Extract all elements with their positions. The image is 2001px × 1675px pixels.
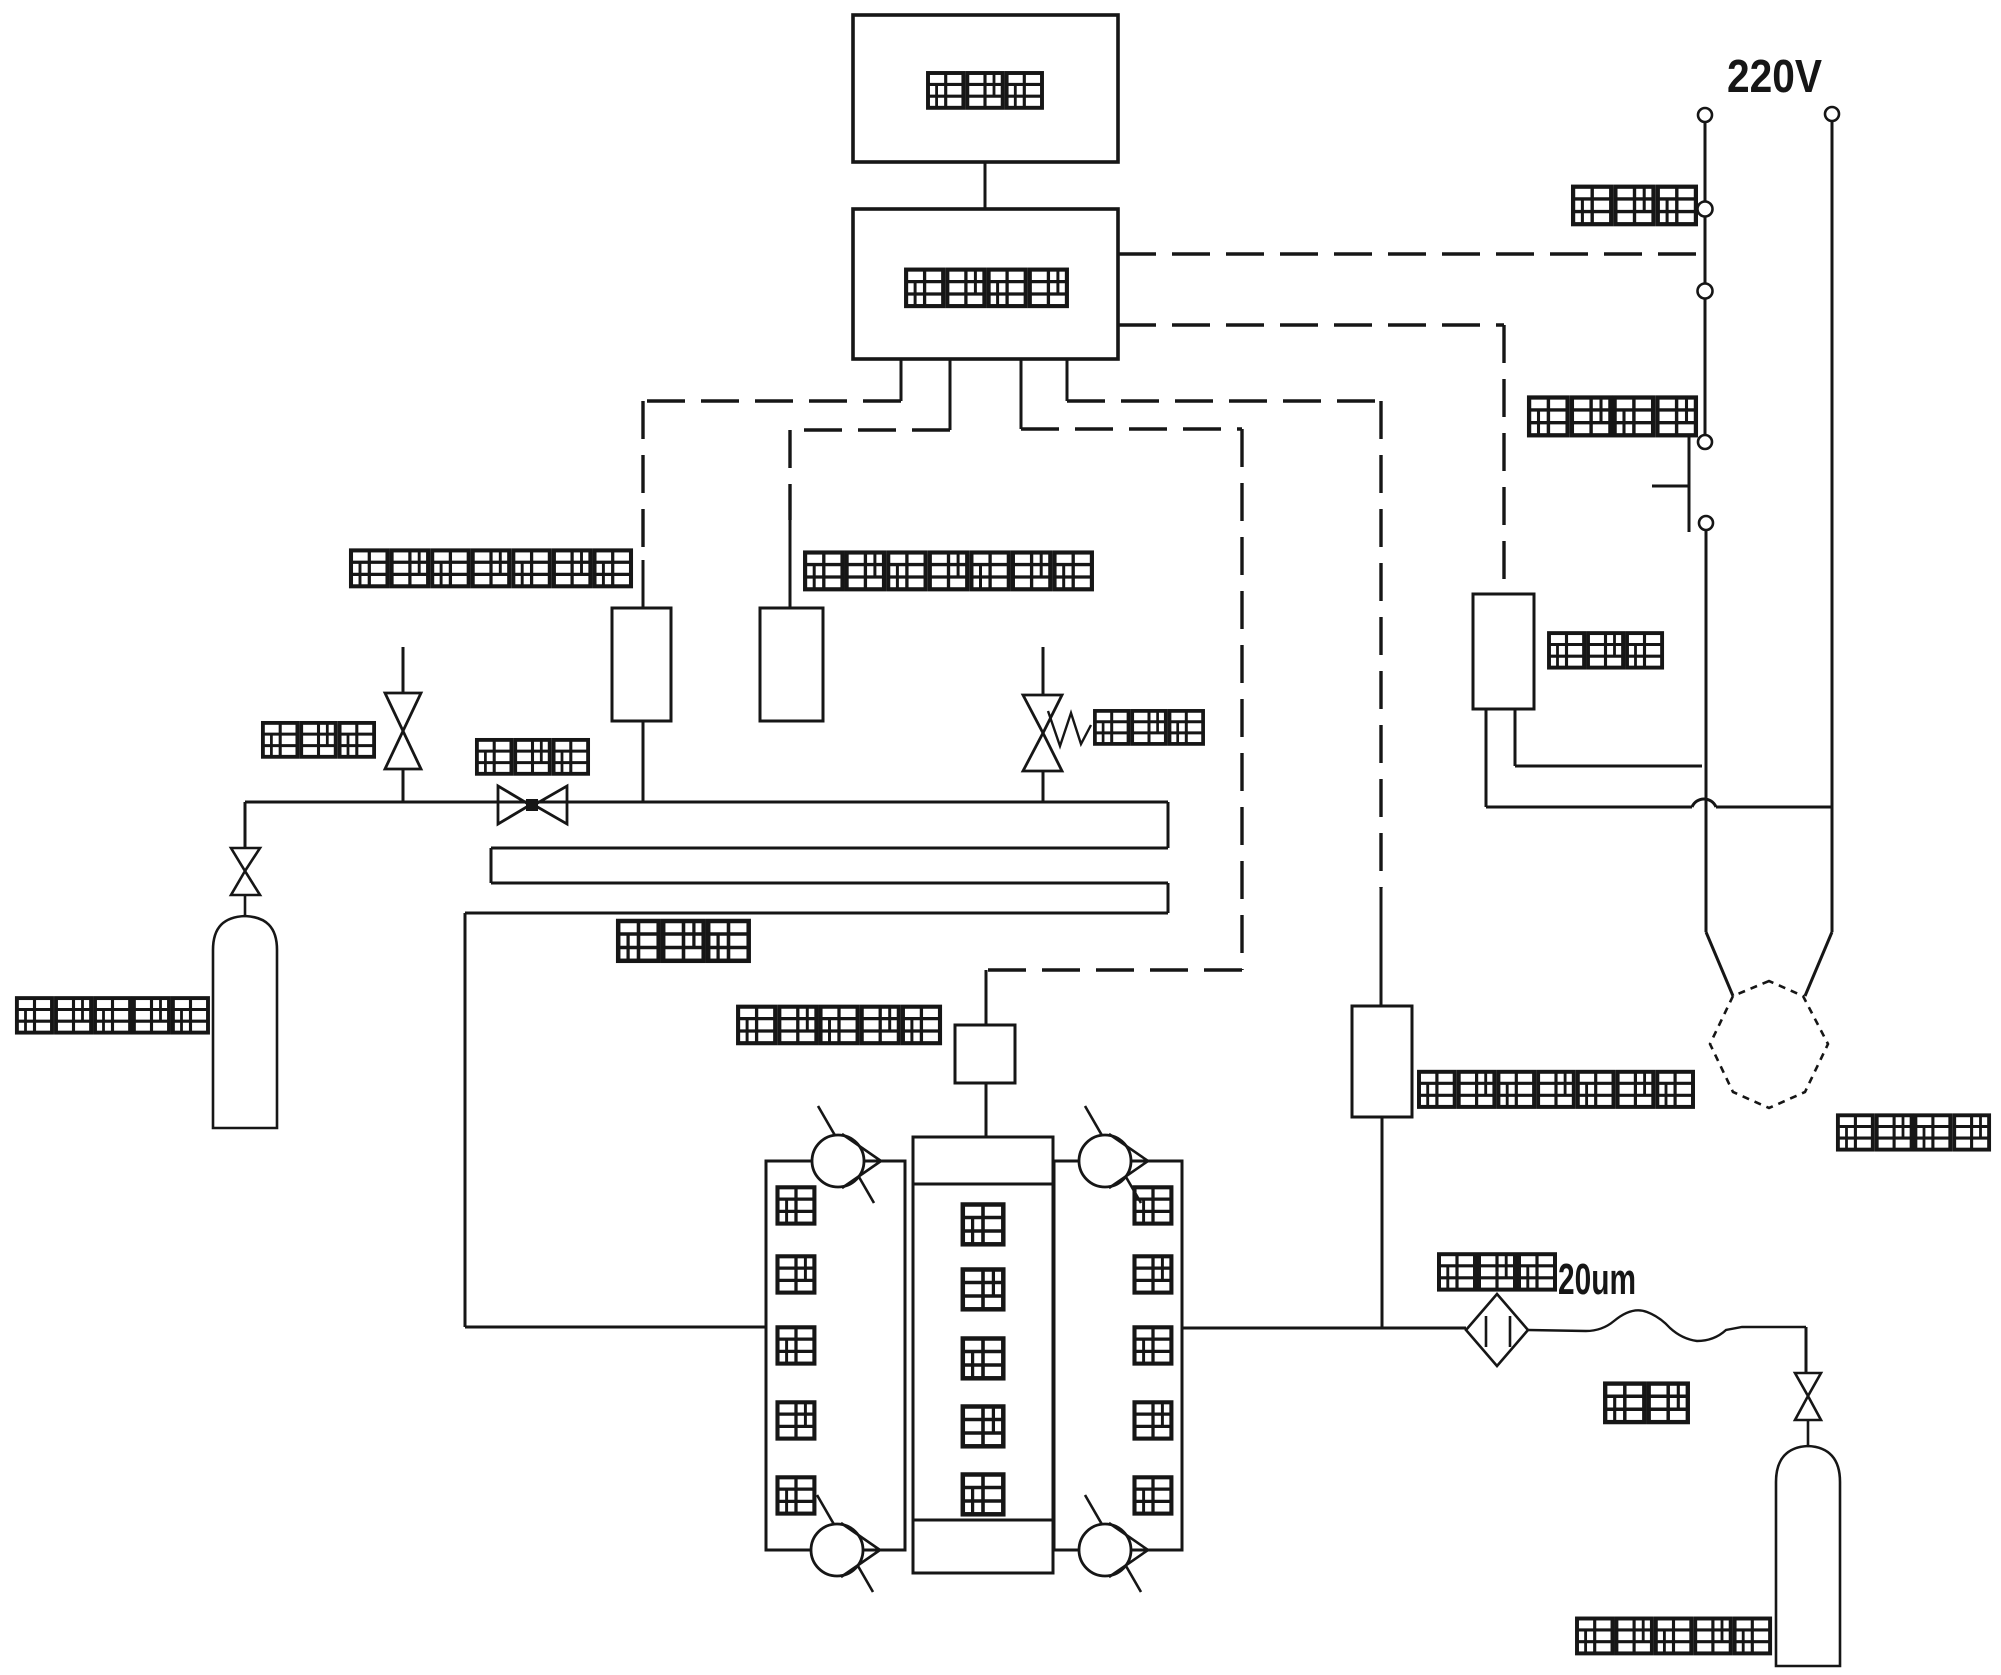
svg-text:20um: 20um (1558, 1255, 1636, 1304)
svg-text:220V: 220V (1727, 50, 1822, 102)
